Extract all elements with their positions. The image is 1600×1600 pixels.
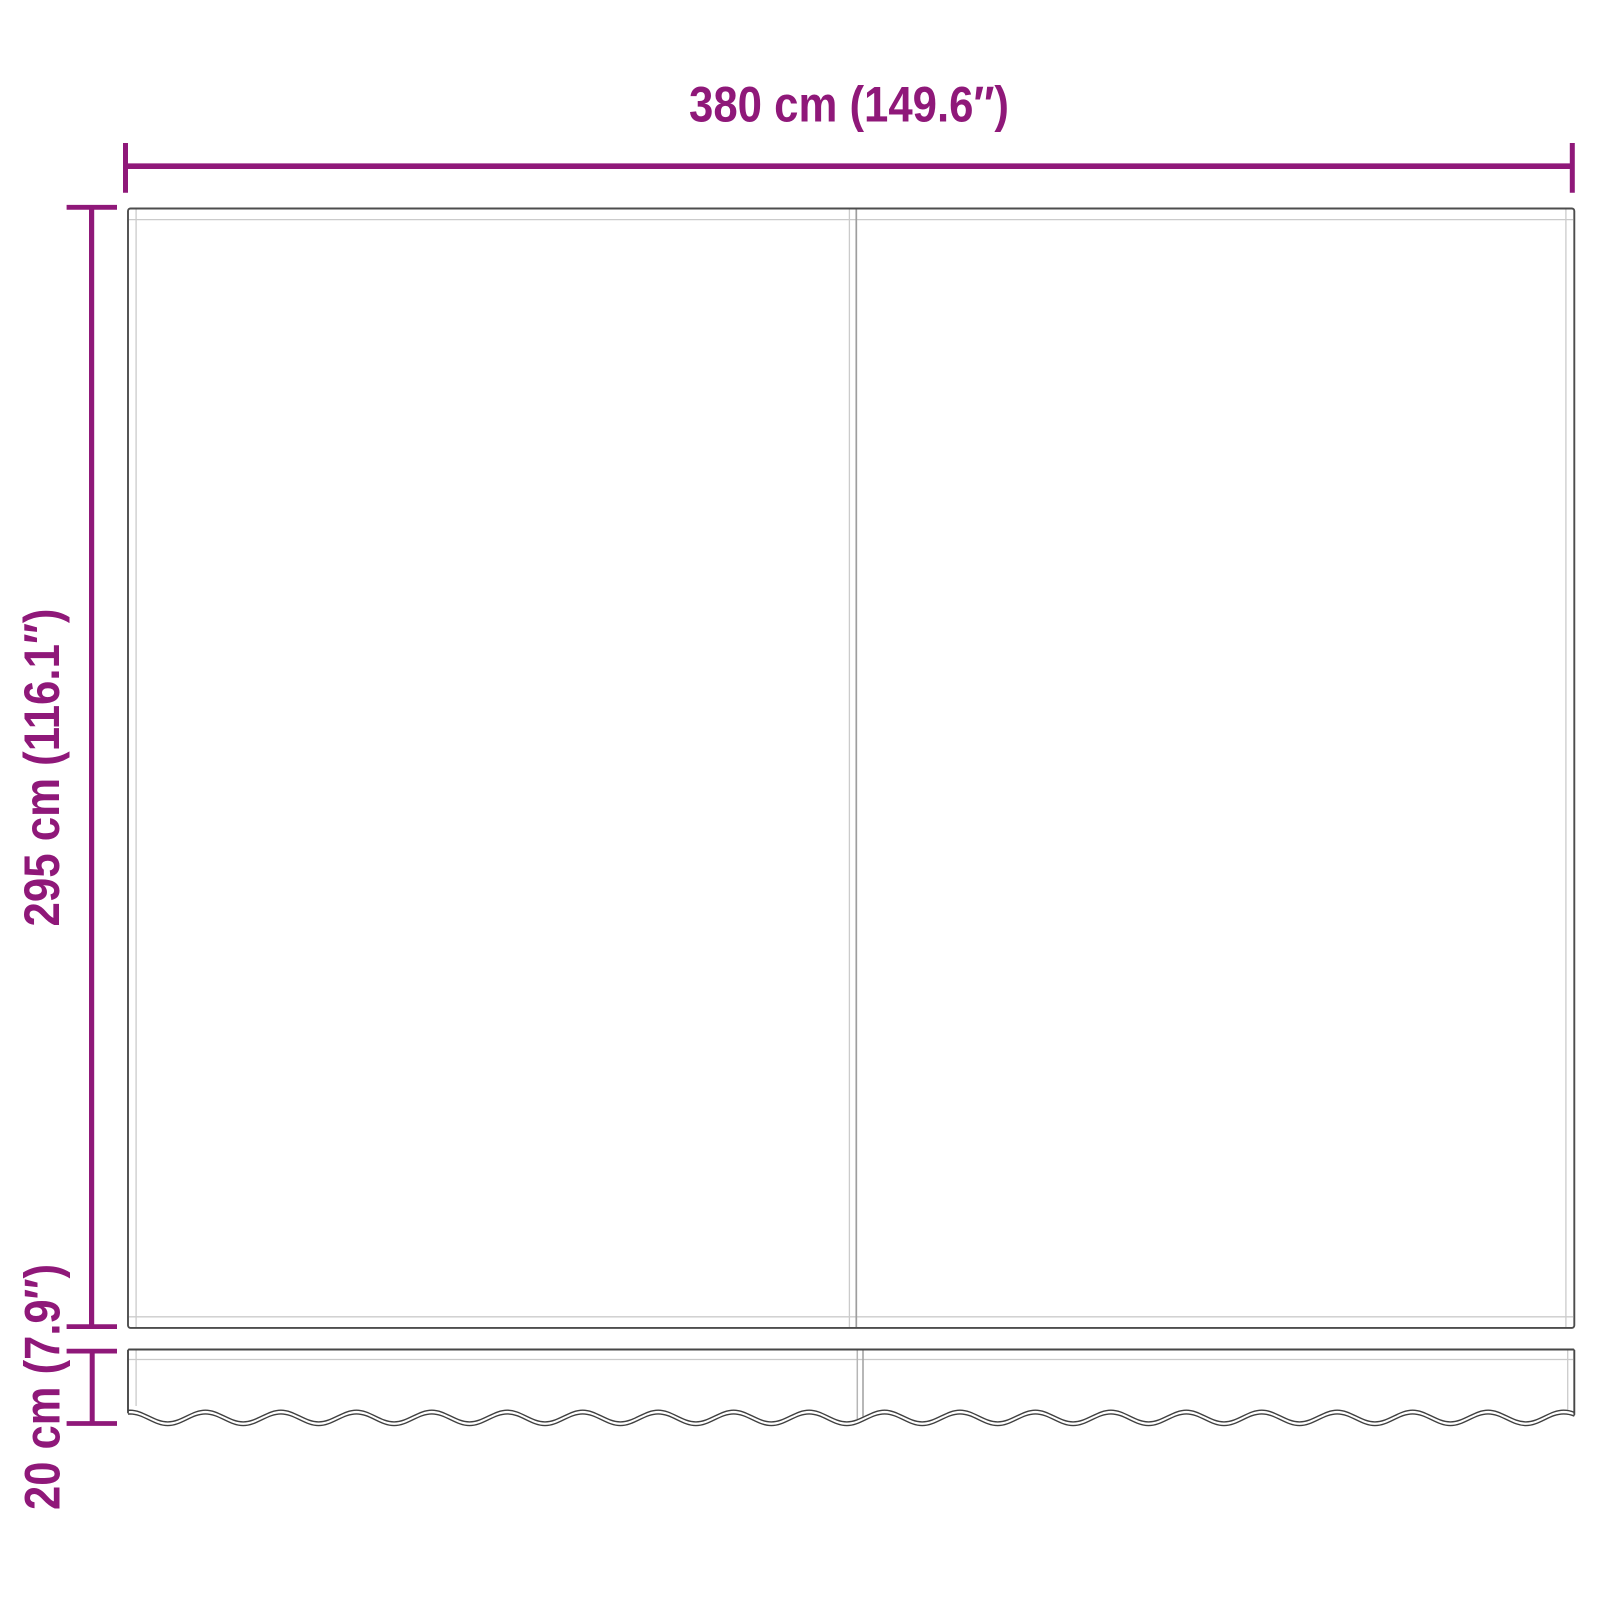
svg-text:380 cm (149.6″): 380 cm (149.6″) bbox=[689, 77, 1009, 133]
svg-text:295 cm (116.1″): 295 cm (116.1″) bbox=[14, 609, 70, 927]
svg-text:20 cm (7.9″): 20 cm (7.9″) bbox=[15, 1264, 71, 1510]
